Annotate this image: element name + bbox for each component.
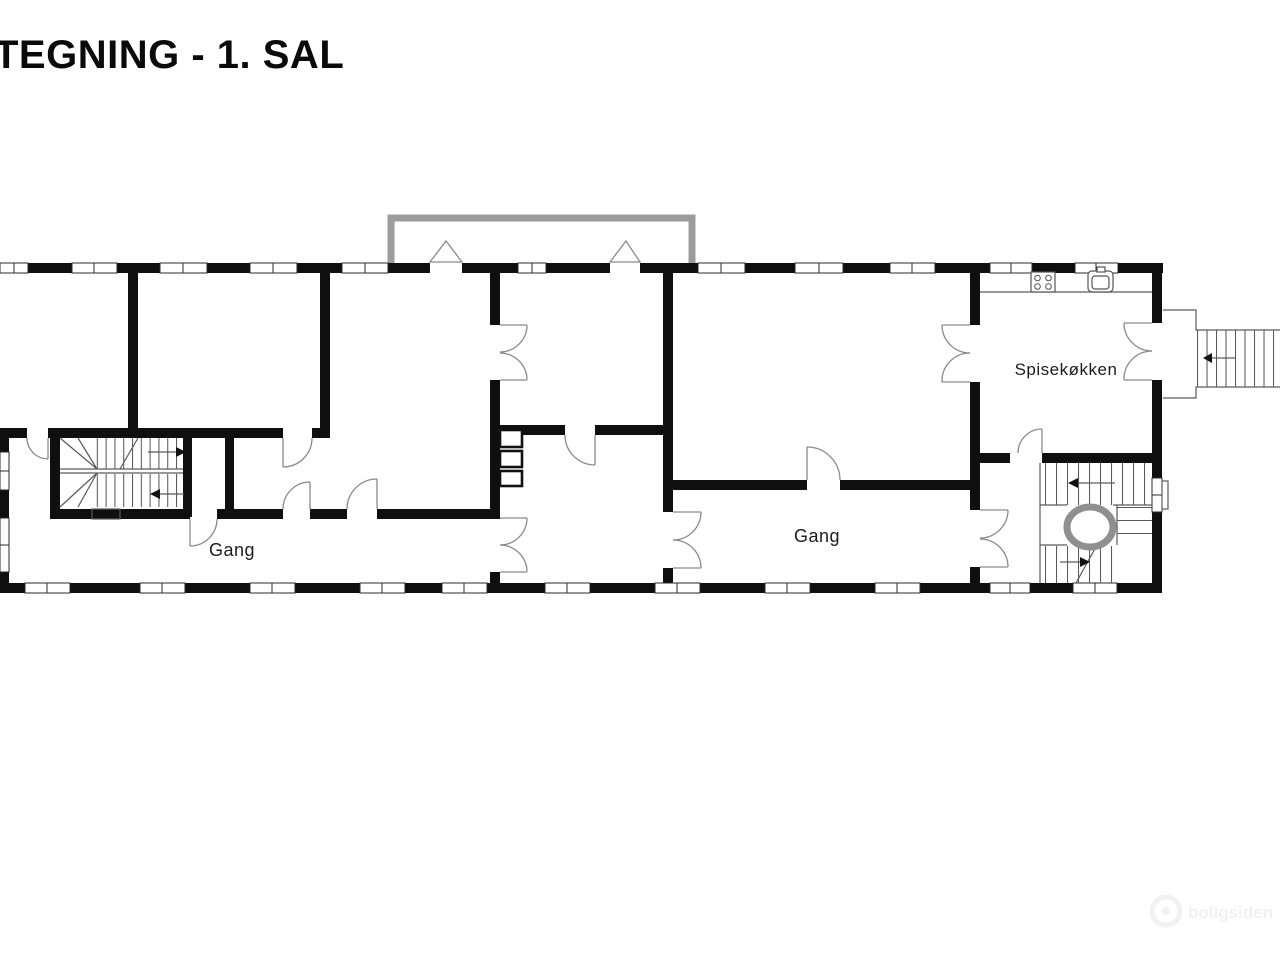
balcony-door-right	[610, 241, 640, 262]
room-label-gang-left: Gang	[209, 540, 255, 560]
staircase-external	[1163, 310, 1280, 398]
staircase-left	[60, 438, 186, 519]
page-title: TEGNING - 1. SAL	[0, 33, 344, 77]
closet-shelves	[500, 430, 522, 486]
walls	[0, 263, 1163, 593]
balcony-door-left	[430, 241, 462, 262]
stove-icon	[1031, 272, 1055, 292]
door-arcs	[27, 241, 1152, 572]
room-label-spisekokken: Spisekøkken	[1015, 360, 1118, 379]
stair-opening-oval	[1067, 507, 1113, 547]
staircase-right	[1040, 463, 1152, 583]
watermark: boligsiden	[1152, 897, 1273, 925]
watermark-text: boligsiden	[1188, 903, 1273, 922]
floor-plan: TEGNING - 1. SAL	[0, 0, 1280, 960]
room-label-gang-right: Gang	[794, 526, 840, 546]
floorplan-page: TEGNING - 1. SAL	[0, 0, 1280, 960]
watermark-logo-dot-icon	[1162, 907, 1170, 915]
sink-icon	[1088, 267, 1113, 292]
